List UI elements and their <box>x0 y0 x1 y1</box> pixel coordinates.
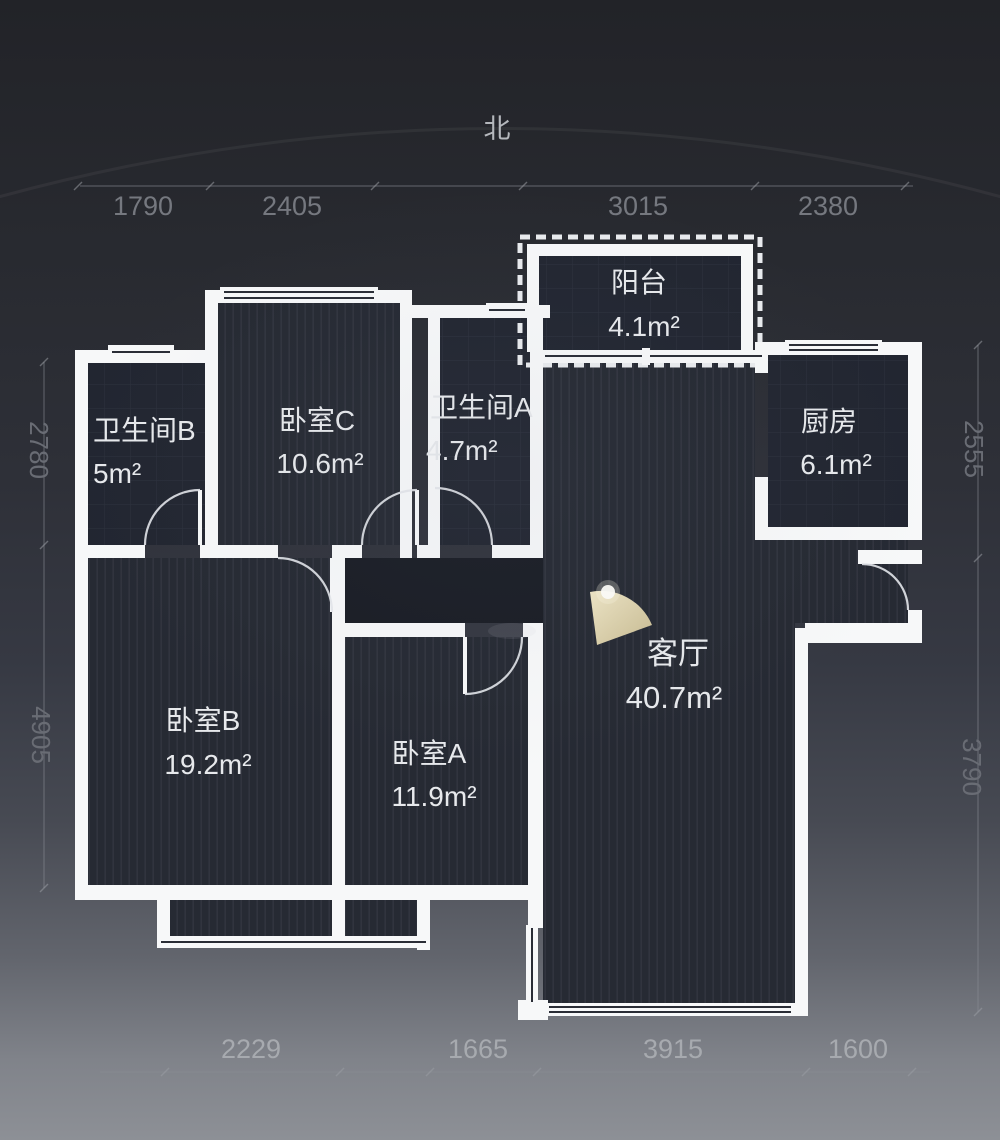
room-label-bedroom-b-area: 19.2m² <box>164 749 251 780</box>
room-label-kitchen-name: 厨房 <box>801 406 857 437</box>
room-label-bedroom-a-area: 11.9m² <box>391 781 476 812</box>
room-label-bathroom-b-area: 5m² <box>93 458 141 489</box>
room-label-living-name: 客厅 <box>647 636 709 671</box>
dim-top-4: 2380 <box>798 191 858 221</box>
window-bathroom-a <box>486 303 528 317</box>
room-label-bedroom-c-name: 卧室C <box>279 405 355 436</box>
window-kitchen <box>785 340 882 354</box>
dim-bottom-1: 2229 <box>221 1034 281 1064</box>
room-label-bedroom-a-name: 卧室A <box>392 738 467 769</box>
dim-bottom-4: 1600 <box>828 1034 888 1064</box>
room-label-balcony-area: 4.1m² <box>608 311 680 342</box>
dim-bottom-2: 1665 <box>448 1034 508 1064</box>
window-bedroom-c <box>220 287 378 303</box>
room-label-bathroom-a-area: 4.7m² <box>426 435 498 466</box>
dim-right-1: 2555 <box>959 420 989 478</box>
room-floor-corridor <box>332 558 543 623</box>
room-label-kitchen-area: 6.1m² <box>800 449 872 480</box>
dim-top-2: 2405 <box>262 191 322 221</box>
room-floor-kitchen <box>768 355 908 527</box>
dim-top-3: 3015 <box>608 191 668 221</box>
dim-top-1: 1790 <box>113 191 173 221</box>
north-label: 北 <box>484 114 511 144</box>
dim-left-2: 4905 <box>26 706 56 764</box>
watermark-smudge <box>488 623 536 639</box>
floor-plan-canvas: 北 <box>0 0 1000 1140</box>
room-label-bathroom-b-name: 卫生间B <box>93 415 196 446</box>
room-label-living-area: 40.7m² <box>626 680 722 715</box>
room-label-balcony-name: 阳台 <box>611 267 667 298</box>
room-floor-bathroom-b <box>88 363 205 545</box>
window-bathroom-b <box>108 345 174 359</box>
room-label-bedroom-c-area: 10.6m² <box>276 448 363 479</box>
room-floor-bedroom-b-bay <box>170 900 417 938</box>
window-bedroom-b-bay <box>157 936 430 948</box>
dim-bottom-3: 3915 <box>643 1034 703 1064</box>
room-label-bathroom-a-name: 卫生间A <box>430 392 533 423</box>
dim-left-1: 2780 <box>24 421 54 479</box>
dim-right-2: 3790 <box>957 738 987 796</box>
room-floor-bathroom-a <box>440 318 530 545</box>
window-living-bottom <box>545 1003 795 1016</box>
window-living-west <box>526 925 538 1005</box>
room-label-bedroom-b-name: 卧室B <box>166 705 241 736</box>
floor-plan-svg: 北 <box>0 0 1000 1140</box>
